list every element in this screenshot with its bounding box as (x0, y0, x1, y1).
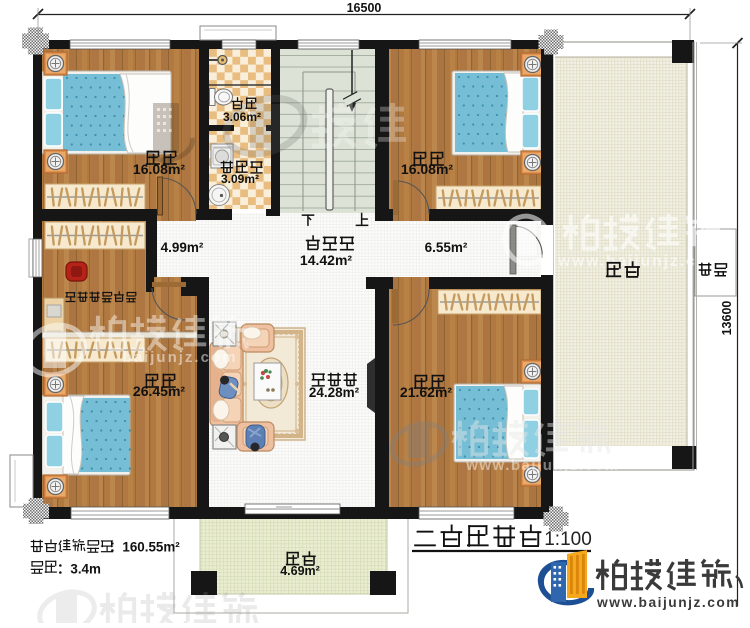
svg-text:24.28m²: 24.28m² (309, 385, 360, 400)
svg-text:14.42m²: 14.42m² (300, 252, 352, 268)
svg-text:：3.4m: ：3.4m (57, 562, 101, 577)
svg-text:www.baijunjz.com: www.baijunjz.com (596, 595, 740, 610)
svg-text:16.08m²: 16.08m² (133, 161, 185, 177)
svg-text:21.62m²: 21.62m² (400, 384, 452, 400)
svg-text:baijunjz.com: baijunjz.com (123, 349, 238, 366)
svg-text:16.08m²: 16.08m² (401, 161, 453, 177)
svg-text:16500: 16500 (347, 1, 382, 15)
svg-text:1:100: 1:100 (544, 529, 592, 550)
svg-text:3.09m²: 3.09m² (221, 172, 259, 186)
svg-text:4.99m²: 4.99m² (161, 240, 204, 255)
svg-text:：160.55m²: ：160.55m² (109, 540, 180, 555)
svg-text:13600: 13600 (720, 301, 734, 336)
svg-text:www.baijunjz.com: www.baijunjz.com (465, 457, 619, 474)
svg-text:3.06m²: 3.06m² (223, 110, 261, 124)
svg-text:4.69m²: 4.69m² (280, 564, 320, 578)
svg-text:26.45m²: 26.45m² (133, 383, 185, 399)
svg-text:6.55m²: 6.55m² (425, 240, 468, 255)
svg-text:www.baijunjz.com: www.baijunjz.com (557, 253, 724, 270)
